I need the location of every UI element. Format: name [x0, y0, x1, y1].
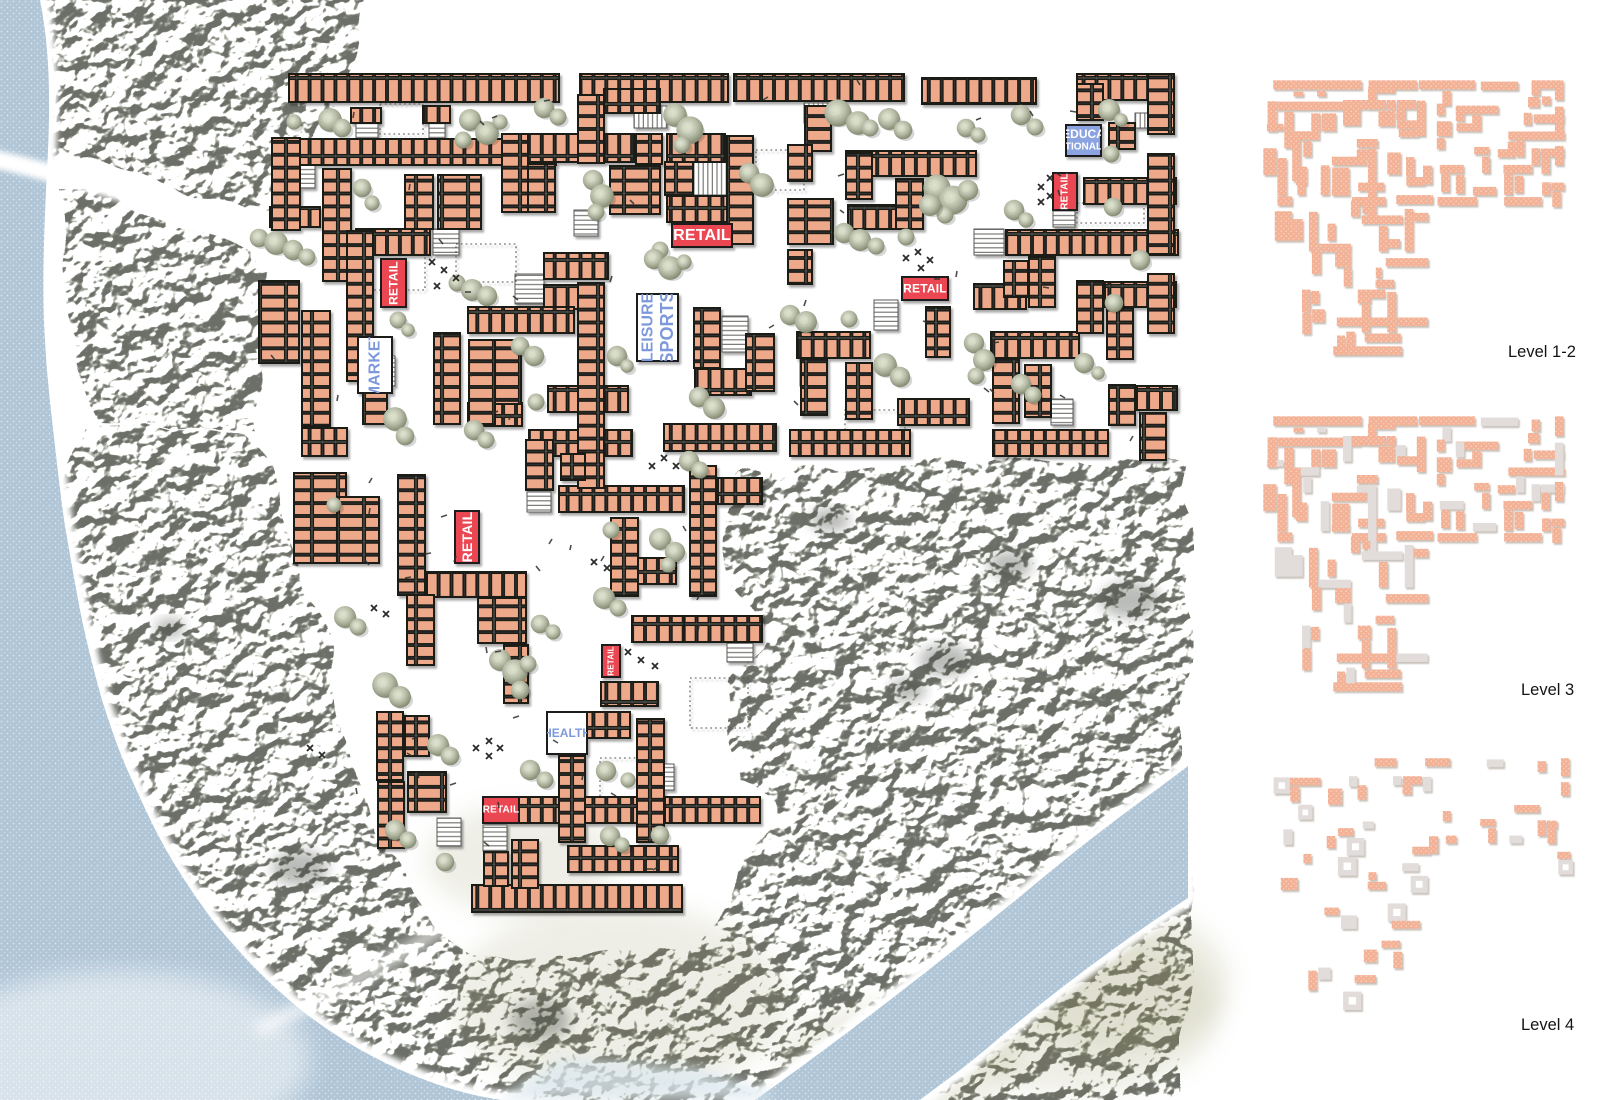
svg-text:Level 3: Level 3: [1521, 681, 1574, 699]
svg-text:EDUCA: EDUCA: [1062, 127, 1105, 141]
svg-text:MARKET: MARKET: [367, 331, 384, 400]
svg-text:Level 1-2: Level 1-2: [1508, 343, 1576, 361]
svg-text:SPORTS: SPORTS: [657, 290, 677, 364]
svg-text:TIONAL: TIONAL: [1065, 142, 1102, 153]
svg-text:RETAIL: RETAIL: [673, 227, 731, 244]
svg-text:RETAIL: RETAIL: [1060, 173, 1071, 210]
svg-text:RETAIL: RETAIL: [903, 282, 947, 296]
svg-text:RETAIL: RETAIL: [387, 261, 401, 305]
svg-text:Level 4: Level 4: [1521, 1016, 1574, 1034]
svg-text:RETAIL: RETAIL: [483, 805, 520, 816]
svg-text:RETAIL: RETAIL: [459, 511, 475, 562]
svg-text:HEALTH: HEALTH: [543, 726, 591, 740]
svg-text:RETAIL: RETAIL: [607, 646, 616, 676]
svg-text:LEISURE: LEISURE: [640, 293, 657, 363]
